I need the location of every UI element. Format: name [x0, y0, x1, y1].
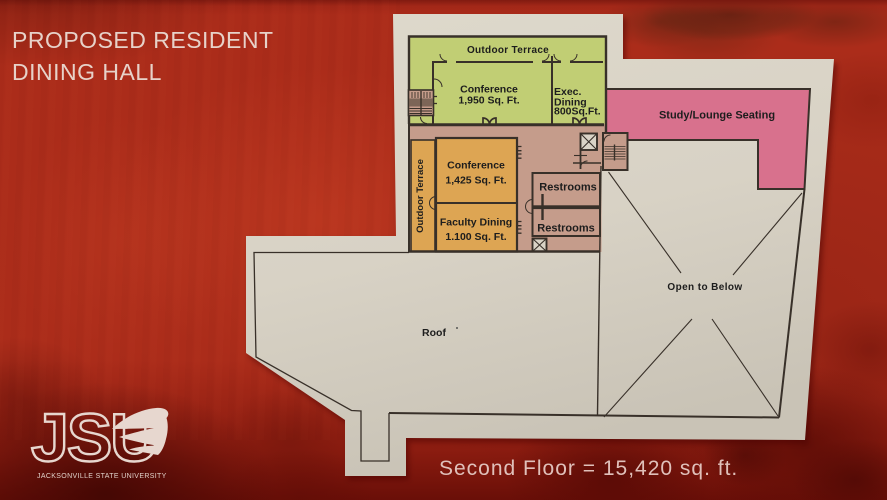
- svg-text:Open to Below: Open to Below: [667, 282, 742, 293]
- svg-text:Conference: Conference: [447, 160, 505, 172]
- svg-text:Outdoor Terrace: Outdoor Terrace: [415, 159, 426, 233]
- svg-text:800Sq.Ft.: 800Sq.Ft.: [554, 106, 601, 118]
- svg-text:Restrooms: Restrooms: [537, 223, 594, 235]
- svg-text:1.100 Sq. Ft.: 1.100 Sq. Ft.: [445, 231, 506, 243]
- svg-text:Roof: Roof: [422, 327, 446, 339]
- svg-text:JACKSONVILLE STATE UNIVERSITY: JACKSONVILLE STATE UNIVERSITY: [37, 473, 167, 480]
- svg-text:Restrooms: Restrooms: [539, 182, 596, 194]
- svg-text:Faculty Dining: Faculty Dining: [440, 217, 512, 229]
- svg-text:Outdoor Terrace: Outdoor Terrace: [467, 45, 549, 56]
- svg-text:Study/Lounge Seating: Study/Lounge Seating: [659, 110, 775, 122]
- svg-text:1,425 Sq. Ft.: 1,425 Sq. Ft.: [445, 175, 506, 187]
- svg-text:1,950 Sq. Ft.: 1,950 Sq. Ft.: [458, 95, 519, 107]
